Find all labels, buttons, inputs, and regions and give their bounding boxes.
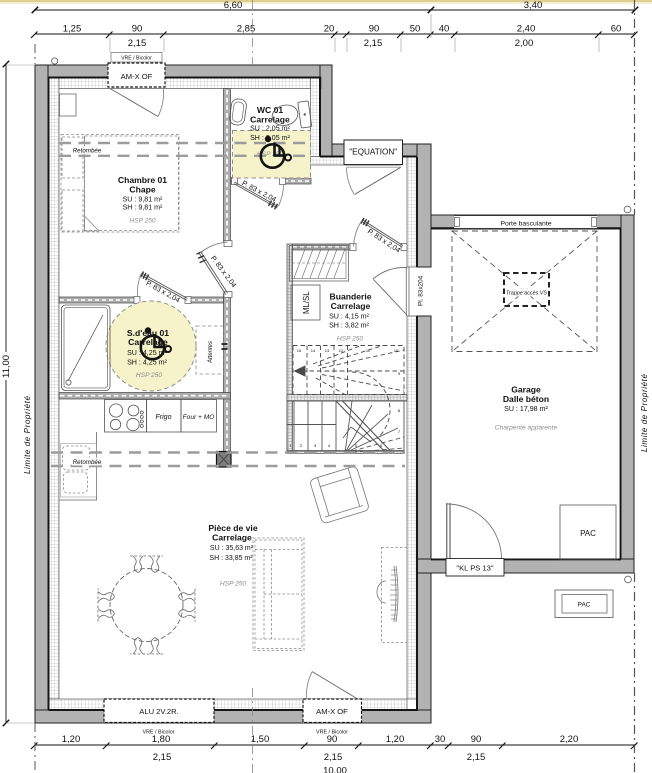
- svg-text:Carrelage: Carrelage: [212, 533, 252, 543]
- svg-text:30: 30: [435, 734, 446, 745]
- svg-text:Pièce de vie: Pièce de vie: [208, 523, 257, 533]
- svg-text:15: 15: [297, 348, 302, 353]
- svg-text:Buanderie: Buanderie: [329, 292, 371, 302]
- svg-text:13: 13: [325, 348, 330, 353]
- svg-text:"KL PS 13": "KL PS 13": [456, 564, 493, 573]
- svg-text:2,15: 2,15: [153, 752, 172, 763]
- svg-text:ALU 2V.2R.: ALU 2V.2R.: [139, 707, 178, 716]
- svg-text:Four + MO: Four + MO: [183, 414, 215, 421]
- svg-text:1,20: 1,20: [62, 734, 81, 745]
- svg-text:SU : 4,15 m²: SU : 4,15 m²: [329, 313, 369, 321]
- svg-text:AM-X OF: AM-X OF: [316, 707, 348, 716]
- svg-text:"EQUATION": "EQUATION": [349, 148, 397, 157]
- svg-text:Pl. 83x204: Pl. 83x204: [418, 275, 425, 306]
- svg-text:VRE / Bicolor: VRE / Bicolor: [121, 56, 152, 62]
- svg-text:Dalle béton: Dalle béton: [503, 394, 549, 404]
- svg-text:Trappe accès VS: Trappe accès VS: [506, 291, 547, 297]
- svg-text:PAC: PAC: [578, 602, 591, 609]
- svg-text:12: 12: [339, 348, 344, 353]
- svg-text:Retombée: Retombée: [73, 459, 102, 466]
- svg-text:90: 90: [132, 24, 143, 35]
- svg-text:40: 40: [439, 24, 450, 35]
- svg-text:SU : 9,81 m²: SU : 9,81 m²: [123, 196, 163, 204]
- svg-text:90: 90: [471, 734, 482, 745]
- svg-text:PAC: PAC: [580, 529, 596, 538]
- svg-text:HSP 250: HSP 250: [136, 372, 162, 379]
- svg-text:90: 90: [327, 734, 338, 745]
- svg-text:HSP 250: HSP 250: [337, 336, 363, 343]
- svg-text:1,80: 1,80: [152, 734, 171, 745]
- svg-text:14: 14: [311, 348, 316, 353]
- svg-text:2,40: 2,40: [517, 24, 536, 35]
- svg-text:10: 10: [394, 348, 399, 353]
- svg-text:HSP 250: HSP 250: [129, 218, 155, 225]
- svg-text:6,60: 6,60: [224, 0, 243, 11]
- svg-text:2,15: 2,15: [128, 38, 147, 49]
- svg-text:Limite de Propriété: Limite de Propriété: [640, 373, 649, 452]
- svg-text:20: 20: [324, 24, 335, 35]
- svg-text:1,25: 1,25: [63, 24, 82, 35]
- svg-text:2,00: 2,00: [515, 38, 534, 49]
- svg-text:60: 60: [611, 24, 622, 35]
- svg-text:HSP 250: HSP 250: [220, 581, 246, 588]
- svg-text:SH : 4,25 m²: SH : 4,25 m²: [127, 359, 167, 367]
- svg-text:SU : 35,63 m²: SU : 35,63 m²: [210, 545, 254, 552]
- svg-text:11,00: 11,00: [1, 355, 12, 378]
- svg-text:90: 90: [369, 24, 380, 35]
- svg-text:ML/SL: ML/SL: [302, 291, 311, 314]
- svg-text:2,15: 2,15: [364, 38, 383, 49]
- svg-text:Porte basculante: Porte basculante: [500, 221, 551, 228]
- svg-text:1,50: 1,50: [251, 734, 270, 745]
- svg-text:Limite de Propriété: Limite de Propriété: [23, 395, 32, 474]
- svg-text:Attentes: Attentes: [208, 341, 214, 364]
- svg-text:3,40: 3,40: [524, 0, 543, 11]
- svg-text:Garage: Garage: [511, 385, 541, 395]
- svg-text:SU : 17,98 m²: SU : 17,98 m²: [504, 405, 548, 413]
- svg-text:Chambre 01: Chambre 01: [118, 175, 167, 185]
- svg-text:Retombée: Retombée: [73, 148, 102, 155]
- svg-text:1,20: 1,20: [386, 734, 405, 745]
- svg-text:Carrelage: Carrelage: [331, 301, 371, 311]
- svg-text:50: 50: [410, 24, 421, 35]
- svg-text:Carrelage: Carrelage: [250, 115, 290, 125]
- svg-text:SH : 3,82 m²: SH : 3,82 m²: [329, 322, 369, 330]
- svg-text:Charpente apparente: Charpente apparente: [495, 425, 558, 432]
- svg-text:2,15: 2,15: [324, 752, 343, 763]
- svg-text:SH : 9,81 m²: SH : 9,81 m²: [123, 204, 163, 212]
- svg-text:2,15: 2,15: [467, 752, 486, 763]
- svg-text:SH : 33,85 m²: SH : 33,85 m²: [209, 555, 253, 562]
- svg-text:10,00: 10,00: [323, 766, 347, 773]
- svg-text:AM-X OF: AM-X OF: [121, 72, 153, 81]
- svg-text:2,20: 2,20: [560, 734, 579, 745]
- svg-text:Frigo: Frigo: [156, 414, 172, 421]
- svg-text:Chape: Chape: [129, 185, 155, 195]
